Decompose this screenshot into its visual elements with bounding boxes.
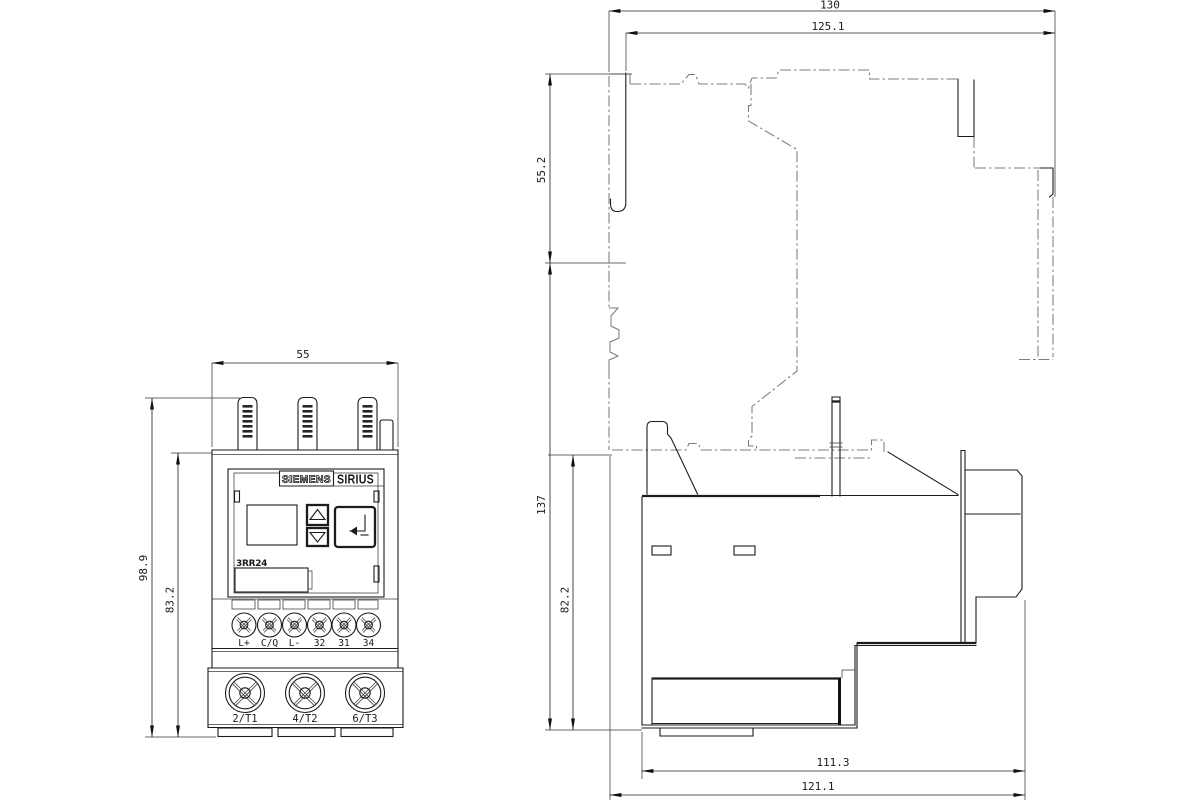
- display-module-profile: [965, 470, 1022, 643]
- relay-side-profile: [642, 397, 1022, 736]
- enter-button[interactable]: [335, 507, 375, 547]
- dim-width: 55: [296, 348, 309, 361]
- dim-height-body: 82.2: [559, 587, 572, 614]
- dim-width-total: 130: [820, 0, 840, 12]
- rating-label-plate: [235, 568, 308, 592]
- main-terminal-block: 2/T1 4/T2 6/T3: [226, 674, 385, 726]
- terminal-label: 34: [363, 638, 375, 649]
- foot: [218, 728, 272, 737]
- enter-key-icon: [350, 515, 368, 536]
- release-lever[interactable]: [830, 397, 843, 496]
- series-label: SIRIUS: [337, 473, 374, 487]
- drawing-canvas: SIEMENS SIRIUS 3RR24: [0, 0, 1200, 800]
- terminal-label: L-: [289, 638, 300, 649]
- connector-tabs: [238, 398, 393, 451]
- terminal-label: 6/T3: [352, 713, 377, 725]
- screw-terminal-icon[interactable]: [283, 613, 307, 637]
- siemens-logo: SIEMENS: [280, 471, 334, 486]
- down-button[interactable]: [307, 528, 328, 546]
- dim-height-total: 137: [535, 495, 548, 515]
- down-arrow-icon: [310, 533, 325, 543]
- mounting-hook: [647, 422, 698, 495]
- dim-width-mount: 125.1: [811, 20, 844, 33]
- terminal-label: C/Q: [261, 638, 278, 649]
- screw-terminal-icon[interactable]: [286, 674, 325, 713]
- front-panel: SIEMENS SIRIUS 3RR24: [228, 469, 384, 597]
- vent-slot: [652, 546, 671, 555]
- brand-label: SIEMENS: [282, 475, 331, 486]
- tab-hatching: [243, 405, 373, 438]
- screw-terminal-icon[interactable]: [226, 674, 265, 713]
- side-dimensions: 130 125.1 55.2 137 82.2 111.3 121.1: [535, 0, 1055, 800]
- dim-depth-body: 111.3: [816, 756, 849, 769]
- foot: [278, 728, 335, 737]
- dim-height-total: 98.9: [137, 555, 150, 582]
- contactor-phantom-outline: [609, 70, 1053, 458]
- dim-height-body: 83.2: [164, 587, 177, 614]
- terminal-cover: [652, 678, 841, 725]
- side-view: 130 125.1 55.2 137 82.2 111.3 121.1: [535, 0, 1055, 800]
- screw-terminal-icon[interactable]: [357, 613, 381, 637]
- up-button[interactable]: [307, 505, 328, 525]
- up-arrow-icon: [310, 510, 325, 520]
- terminal-label: L+: [238, 638, 250, 649]
- foot: [341, 728, 393, 737]
- screw-terminal-icon[interactable]: [332, 613, 356, 637]
- screw-terminal-icon[interactable]: [258, 613, 282, 637]
- vent-slot: [734, 546, 755, 555]
- small-tab: [380, 420, 393, 450]
- terminal-label: 2/T1: [232, 713, 257, 725]
- terminal-label: 32: [314, 638, 325, 649]
- dimension-drawing: SIEMENS SIRIUS 3RR24: [0, 0, 1200, 800]
- foot: [660, 728, 753, 736]
- front-view: SIEMENS SIRIUS 3RR24: [137, 348, 403, 737]
- terminal-label: 4/T2: [292, 713, 317, 725]
- control-terminal-strip: L+ C/Q L- 32 31 34: [232, 600, 381, 649]
- display-window: [247, 505, 297, 545]
- control-terminal-labels: L+ C/Q L- 32 31 34: [238, 638, 374, 649]
- screw-terminal-icon[interactable]: [346, 674, 385, 713]
- screw-terminal-icon[interactable]: [308, 613, 332, 637]
- dim-depth-total: 121.1: [801, 780, 834, 793]
- screw-terminal-icon[interactable]: [232, 613, 256, 637]
- dim-height-upper: 55.2: [535, 157, 548, 184]
- terminal-label: 31: [338, 638, 350, 649]
- control-screws: [232, 613, 381, 637]
